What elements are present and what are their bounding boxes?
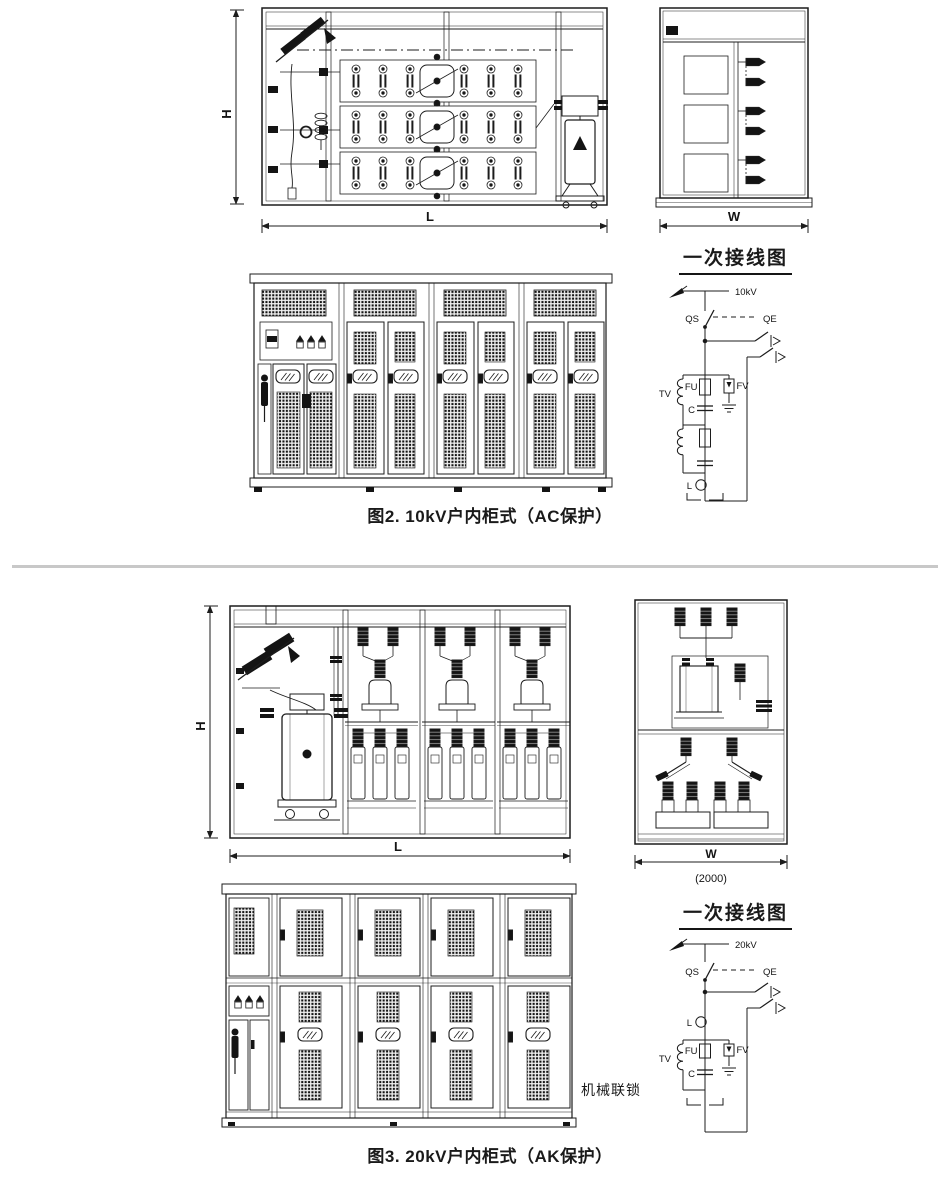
cabinet-section xyxy=(347,290,424,474)
l-dimension xyxy=(262,219,607,233)
vent-grille xyxy=(262,290,326,316)
dim-label-h: H xyxy=(222,109,234,118)
dim-label-w: W xyxy=(728,209,741,224)
voltage-label: 10kV xyxy=(735,287,757,298)
fv-arrester xyxy=(724,375,734,403)
fig2-schematic-drawing: 10kV QS QE TV FU C FV L xyxy=(643,275,823,507)
fig3-schematic-title: 一次接线图 xyxy=(679,898,792,930)
door-window xyxy=(276,370,300,383)
fig3-schematic: 一次接线图 xyxy=(643,898,828,1138)
tv-label: TV xyxy=(659,389,672,400)
fu-label: FU xyxy=(685,1046,698,1057)
cabinet-section xyxy=(280,898,342,1108)
support-insulators xyxy=(655,738,762,781)
capacitor-bay xyxy=(497,628,570,808)
insulator-compartment xyxy=(684,105,765,143)
cabinet-section xyxy=(527,290,604,474)
discharge-transformer xyxy=(554,96,608,208)
tv-winding xyxy=(677,375,683,473)
fv-label: FV xyxy=(737,1045,750,1056)
door-window xyxy=(309,370,333,383)
control-cable xyxy=(291,64,294,188)
cabinet-section xyxy=(431,898,493,1108)
bus-riser xyxy=(330,627,342,716)
dim-value-w: (2000) xyxy=(695,873,727,885)
cabinet-section xyxy=(437,290,514,474)
qe-earthing-switch xyxy=(705,983,785,1132)
c-label: C xyxy=(688,405,695,416)
c-label: C xyxy=(688,1069,695,1080)
indicator-lamps xyxy=(235,996,263,1008)
capacitor-bank-row xyxy=(280,100,536,153)
cabinet-section xyxy=(508,898,570,1108)
qe-label: QE xyxy=(763,314,777,325)
dim-label-h: H xyxy=(196,721,208,730)
fu-label: FU xyxy=(685,382,698,393)
tv-label: TV xyxy=(659,1054,672,1065)
dim-label-w: W xyxy=(705,847,717,861)
fig3-caption: 图3. 20kV户内柜式（AK保护） xyxy=(250,1142,730,1167)
disconnect-switch xyxy=(238,633,300,688)
cabinet-door xyxy=(250,1020,269,1110)
tv-winding xyxy=(677,1040,683,1090)
l-label: L xyxy=(687,481,692,492)
h-dimension xyxy=(230,10,244,204)
cabinet-outline xyxy=(635,600,787,844)
qs-switch xyxy=(704,310,714,328)
vent-grille xyxy=(277,392,300,468)
vent-grille xyxy=(310,392,332,468)
incoming-line xyxy=(669,286,729,298)
discharge-transformer xyxy=(674,658,724,718)
fig2-side-drawing: W xyxy=(650,2,818,236)
dim-label-l: L xyxy=(394,839,402,854)
fig2-elevation-drawing: H L xyxy=(222,2,616,236)
damping-branch xyxy=(683,429,713,473)
capacitor-units xyxy=(656,782,768,828)
roof-insulators xyxy=(675,608,737,658)
incoming-line xyxy=(669,939,729,951)
surge-arrester xyxy=(735,664,745,700)
datasheet-page: H L xyxy=(0,0,950,1192)
fig2-front-drawing xyxy=(248,270,616,498)
cabinet-section-control xyxy=(229,898,269,1110)
l-label: L xyxy=(687,1018,692,1029)
qs-label: QS xyxy=(685,314,699,325)
main-transformer xyxy=(260,694,348,820)
ground-symbol xyxy=(722,405,736,412)
fig2-schematic: 一次接线图 xyxy=(643,243,828,507)
insulator-compartment xyxy=(684,56,765,94)
voltage-label: 20kV xyxy=(735,940,757,951)
interlock-label: 机械联锁 xyxy=(581,1080,641,1100)
qe-label: QE xyxy=(763,967,777,978)
section-divider xyxy=(12,565,938,568)
capacitor-bay xyxy=(345,628,418,808)
door-latch xyxy=(302,394,311,408)
ground-symbol xyxy=(722,1068,736,1075)
fv-label: FV xyxy=(737,381,750,392)
capacitor-bank-row xyxy=(280,54,536,107)
capacitor-bank-row xyxy=(280,146,536,199)
qs-switch xyxy=(704,963,714,981)
fig3-front-drawing xyxy=(218,880,580,1130)
fig3-side-drawing: W (2000) xyxy=(628,596,806,888)
capacitor-bay xyxy=(422,628,495,808)
fig3-schematic-drawing: 20kV QS QE L TV FU C FV xyxy=(643,930,823,1138)
cabinet-section-control xyxy=(258,290,336,474)
operating-handle xyxy=(261,375,268,423)
cabinet-section xyxy=(358,898,420,1108)
vent-grille xyxy=(234,908,254,954)
insulator-compartment xyxy=(684,154,765,192)
qs-label: QS xyxy=(685,967,699,978)
operating-handle xyxy=(232,1029,239,1075)
fig3-elevation-drawing: H L xyxy=(196,598,626,870)
disconnect-switch xyxy=(276,17,336,62)
dim-label-l: L xyxy=(426,209,434,224)
fig2-schematic-title: 一次接线图 xyxy=(679,243,792,275)
fv-arrester xyxy=(724,1040,734,1066)
fig2-caption: 图2. 10kV户内柜式（AC保护） xyxy=(250,502,730,527)
qe-earthing-switch xyxy=(705,332,785,501)
indicator-lamps xyxy=(297,336,325,348)
